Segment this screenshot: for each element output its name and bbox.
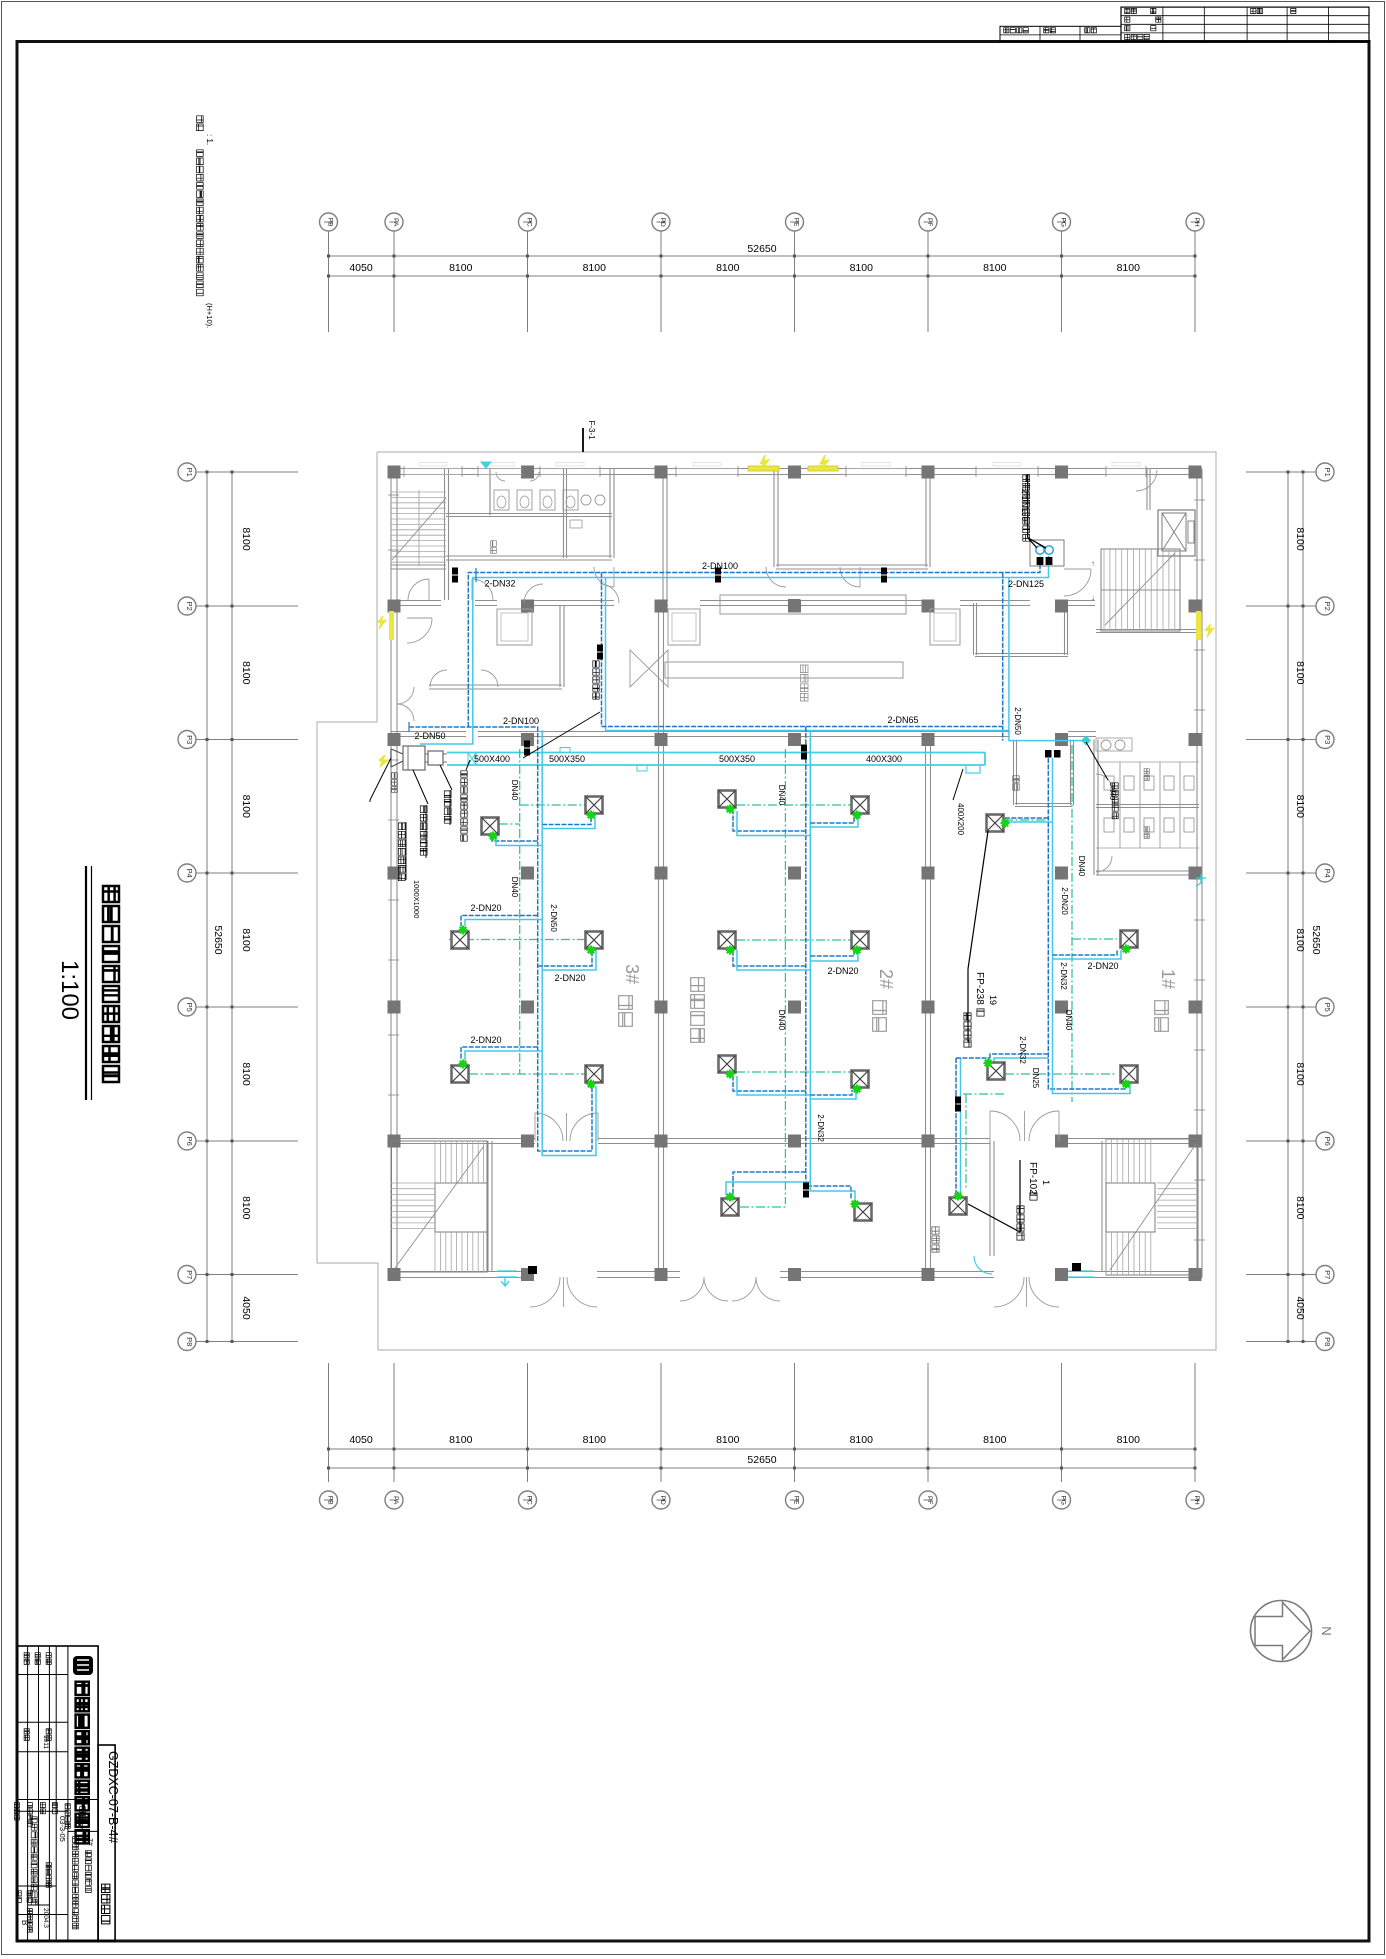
svg-text:PE: PE — [793, 1496, 800, 1505]
svg-text:1#: 1# — [1158, 969, 1178, 989]
svg-text:8100: 8100 — [1117, 1434, 1141, 1446]
svg-text:DN40: DN40 — [1077, 856, 1086, 877]
svg-text:2004.3: 2004.3 — [42, 1908, 49, 1928]
svg-text:500X350: 500X350 — [719, 754, 755, 764]
svg-text:2-DN32: 2-DN32 — [1018, 1036, 1027, 1064]
svg-text:FP-238: FP-238 — [974, 972, 985, 1005]
svg-text:4050: 4050 — [1294, 1296, 1306, 1320]
svg-text:2-DN50: 2-DN50 — [414, 731, 445, 741]
svg-text:8100: 8100 — [716, 262, 740, 274]
svg-text:8100: 8100 — [1294, 527, 1306, 551]
svg-text:DN40: DN40 — [510, 877, 519, 898]
svg-text:8100: 8100 — [240, 795, 252, 819]
svg-text:P3: P3 — [185, 735, 194, 744]
svg-text:P8: P8 — [185, 1337, 194, 1346]
svg-text:2-DN20: 2-DN20 — [1060, 887, 1069, 915]
svg-text:8100: 8100 — [1117, 262, 1141, 274]
svg-text:8100: 8100 — [240, 527, 252, 551]
svg-text:P6: P6 — [185, 1137, 194, 1146]
svg-text:8100: 8100 — [583, 262, 607, 274]
svg-text:2-DN100: 2-DN100 — [503, 716, 539, 726]
svg-text:DN40: DN40 — [1108, 782, 1115, 800]
svg-text:03-3-05: 03-3-05 — [58, 1816, 67, 1842]
svg-text:DN25: DN25 — [1031, 1068, 1040, 1089]
svg-text:8100: 8100 — [240, 928, 252, 952]
svg-text:P1: P1 — [185, 468, 194, 477]
svg-text:8100: 8100 — [240, 661, 252, 685]
svg-text:2-DN150: 2-DN150 — [1020, 489, 1029, 522]
svg-text:DN40: DN40 — [510, 780, 519, 801]
svg-text:P2: P2 — [1323, 602, 1332, 611]
svg-text:P8: P8 — [1323, 1337, 1332, 1346]
svg-text:FP-102: FP-102 — [1027, 1162, 1038, 1195]
svg-text:8100: 8100 — [1294, 928, 1306, 952]
svg-text:PA: PA — [392, 1496, 399, 1505]
svg-text:1911: 1911 — [42, 1735, 49, 1749]
svg-text:2-DN20: 2-DN20 — [554, 973, 585, 983]
svg-text:↓: ↓ — [1091, 593, 1095, 602]
svg-text:8100: 8100 — [1294, 1062, 1306, 1086]
svg-text:8100: 8100 — [583, 1434, 607, 1446]
svg-text:P7: P7 — [185, 1270, 194, 1279]
svg-text:8100: 8100 — [1294, 1196, 1306, 1220]
svg-text:DN40: DN40 — [777, 1010, 786, 1031]
svg-text:4050: 4050 — [349, 1434, 373, 1446]
svg-text:2-DN20: 2-DN20 — [827, 966, 858, 976]
svg-text:(H+10).: (H+10). — [205, 303, 214, 328]
svg-text:↑: ↑ — [1091, 559, 1095, 568]
svg-text:PE: PE — [793, 218, 800, 227]
svg-text:19: 19 — [988, 995, 998, 1005]
svg-text:: 1.: : 1. — [205, 134, 214, 145]
svg-text:P3: P3 — [1323, 735, 1332, 744]
svg-text:2-DN32: 2-DN32 — [816, 1114, 825, 1142]
svg-text:P5: P5 — [1323, 1003, 1332, 1012]
svg-text:52650: 52650 — [212, 925, 224, 954]
svg-text:8100: 8100 — [850, 262, 874, 274]
svg-text:P2: P2 — [185, 602, 194, 611]
svg-text:8100: 8100 — [240, 1196, 252, 1220]
svg-text:52650: 52650 — [747, 243, 776, 255]
svg-text:2-DN32: 2-DN32 — [484, 579, 515, 589]
svg-text:1000X1000: 1000X1000 — [412, 880, 421, 918]
svg-text:GZDXC-07-B-4#: GZDXC-07-B-4# — [106, 1751, 120, 1843]
svg-text:8100: 8100 — [1294, 795, 1306, 819]
svg-text:2-DN125: 2-DN125 — [1008, 579, 1044, 589]
svg-text:P1: P1 — [1323, 468, 1332, 477]
svg-text:8100: 8100 — [850, 1434, 874, 1446]
svg-text:2-DN32: 2-DN32 — [1059, 962, 1068, 990]
svg-text:8100: 8100 — [449, 262, 473, 274]
svg-text:8100: 8100 — [983, 262, 1007, 274]
svg-text:52650: 52650 — [1310, 925, 1322, 954]
svg-text:DN40: DN40 — [1064, 1010, 1073, 1031]
svg-text:P6: P6 — [1323, 1137, 1332, 1146]
svg-text:8100: 8100 — [983, 1434, 1007, 1446]
svg-text:P7: P7 — [1323, 1270, 1332, 1279]
svg-text:P4: P4 — [1323, 869, 1332, 878]
svg-text:4050: 4050 — [349, 262, 373, 274]
svg-text:8100: 8100 — [1294, 661, 1306, 685]
svg-text:P4: P4 — [185, 869, 194, 878]
svg-text:4050: 4050 — [240, 1296, 252, 1320]
svg-text:2-DN20: 2-DN20 — [470, 1035, 501, 1045]
svg-text:2#: 2# — [876, 969, 896, 989]
svg-text:500X400: 500X400 — [474, 754, 510, 764]
svg-text:1:100: 1:100 — [56, 960, 83, 1020]
svg-text:2-DN20: 2-DN20 — [470, 903, 501, 913]
svg-text:400X300: 400X300 — [866, 754, 902, 764]
svg-text:PA: PA — [392, 218, 399, 227]
svg-text:3#: 3# — [622, 964, 642, 984]
svg-text:F-3-1: F-3-1 — [587, 420, 596, 440]
svg-text:DN40: DN40 — [777, 785, 786, 806]
svg-text:2-DN20: 2-DN20 — [1087, 961, 1118, 971]
svg-text:8100: 8100 — [716, 1434, 740, 1446]
svg-text:7#: 7# — [86, 1838, 93, 1846]
svg-text:2-DN50: 2-DN50 — [1013, 707, 1022, 735]
svg-text:N: N — [1319, 1626, 1334, 1635]
svg-text:1: 1 — [1041, 1180, 1051, 1185]
svg-text:500X350: 500X350 — [549, 754, 585, 764]
svg-text:2-DN50: 2-DN50 — [549, 904, 558, 932]
svg-text:52650: 52650 — [747, 1454, 776, 1466]
svg-text:400X200: 400X200 — [956, 803, 965, 836]
svg-text:2-DN65: 2-DN65 — [887, 715, 918, 725]
svg-text:P5: P5 — [185, 1003, 194, 1012]
svg-text:8100: 8100 — [240, 1062, 252, 1086]
svg-text:8100: 8100 — [449, 1434, 473, 1446]
